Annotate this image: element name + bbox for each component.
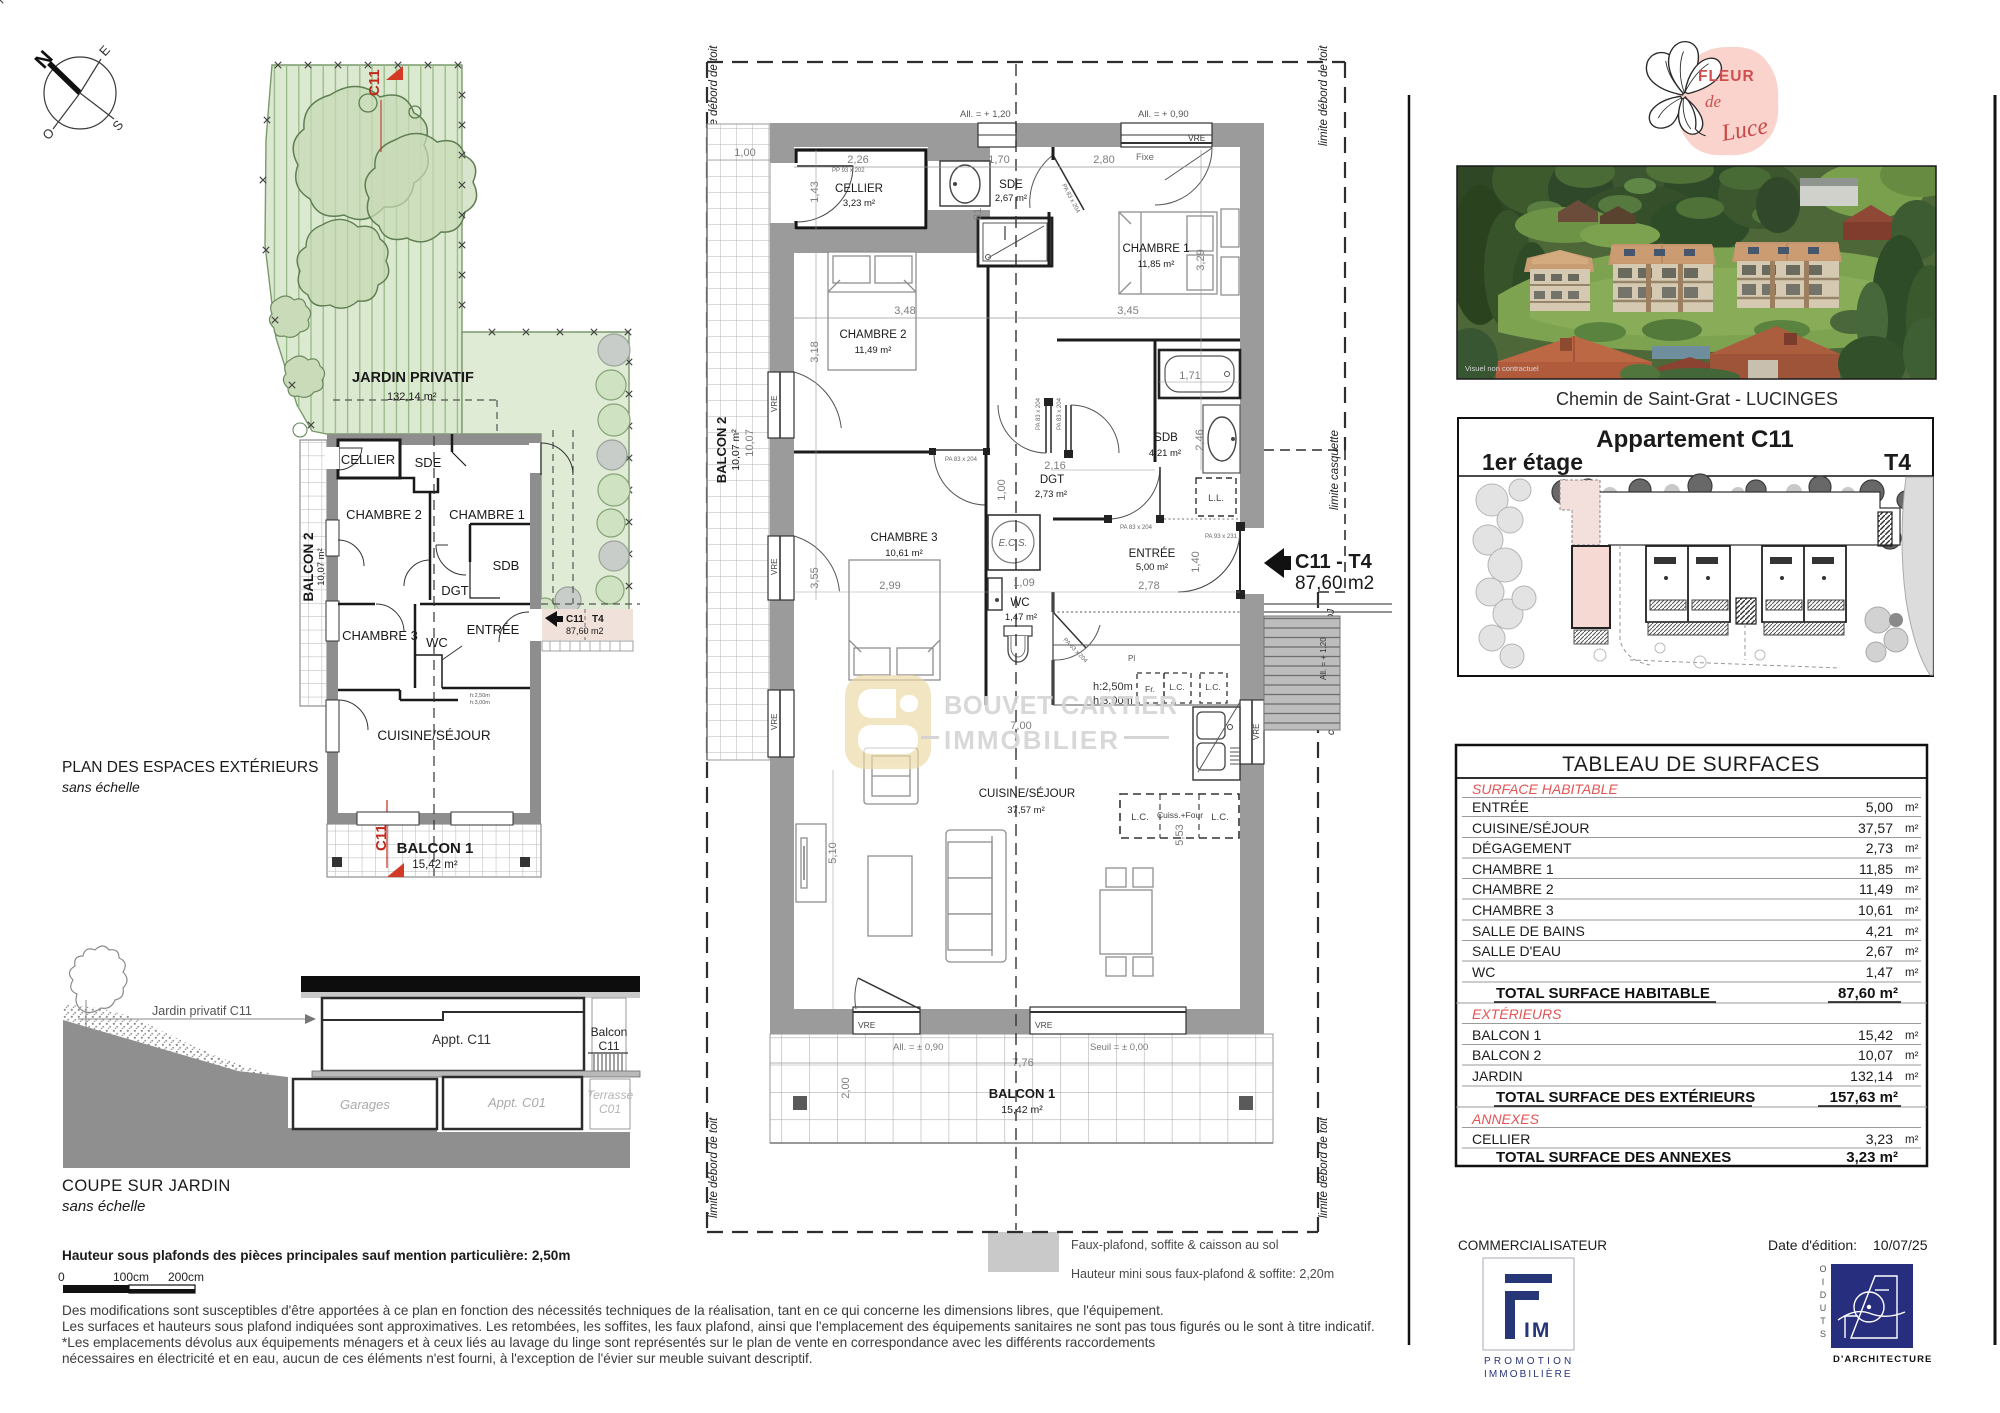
svg-text:CHAMBRE 2: CHAMBRE 2 <box>839 329 906 341</box>
svg-text:EXTÉRIEURS: EXTÉRIEURS <box>1472 1006 1562 1022</box>
svg-text:CHAMBRE 3: CHAMBRE 3 <box>342 628 418 643</box>
svg-text:Hauteur mini sous faux-plafond: Hauteur mini sous faux-plafond & soffite… <box>1071 1267 1334 1281</box>
svg-text:3,23 m²: 3,23 m² <box>843 198 875 209</box>
svg-text:CHAMBRE 3: CHAMBRE 3 <box>1472 902 1554 918</box>
svg-text:DGT: DGT <box>441 583 469 598</box>
svg-text:T4: T4 <box>1884 449 1911 475</box>
svg-text:FLEUR: FLEUR <box>1698 68 1755 85</box>
svg-text:h:2,50m: h:2,50m <box>470 693 490 699</box>
svg-text:WC: WC <box>426 635 448 650</box>
svg-text:BALCON 2: BALCON 2 <box>1472 1047 1541 1063</box>
svg-text:m²: m² <box>1905 1134 1919 1146</box>
svg-text:81: 81 <box>972 208 984 220</box>
svg-text:PA 83 x 204: PA 83 x 204 <box>1036 397 1042 430</box>
svg-text:All. = + 1,20: All. = + 1,20 <box>1319 637 1328 680</box>
svg-text:87,60 m²: 87,60 m² <box>1838 985 1898 1002</box>
svg-text:m²: m² <box>1905 926 1919 938</box>
svg-text:37,57 m²: 37,57 m² <box>1007 805 1045 816</box>
svg-text:D: D <box>1820 1290 1827 1300</box>
svg-text:Seuil = ± 0,00: Seuil = ± 0,00 <box>1090 1042 1148 1053</box>
svg-text:JARDIN PRIVATIF: JARDIN PRIVATIF <box>352 370 474 386</box>
svg-text:T4: T4 <box>592 614 604 625</box>
svg-text:1,47 m²: 1,47 m² <box>1005 612 1037 623</box>
svg-text:C11: C11 <box>566 614 584 625</box>
svg-text:TOTAL SURFACE DES EXTÉRIEURS: TOTAL SURFACE DES EXTÉRIEURS <box>1496 1089 1755 1106</box>
svg-text:BOUVET CARTIER: BOUVET CARTIER <box>944 692 1178 720</box>
svg-text:PA 93 x 231: PA 93 x 231 <box>1205 534 1238 540</box>
svg-text:1,09: 1,09 <box>1013 577 1034 589</box>
svg-text:m²: m² <box>1905 946 1919 958</box>
svg-text:11,49: 11,49 <box>1859 881 1893 897</box>
svg-text:TOTAL SURFACE DES ANNEXES: TOTAL SURFACE DES ANNEXES <box>1496 1149 1731 1166</box>
svg-text:Appartement C11: Appartement C11 <box>1596 426 1793 453</box>
svg-text:All. = + 1,20: All. = + 1,20 <box>960 109 1011 120</box>
svg-text:2,73: 2,73 <box>1866 840 1893 856</box>
svg-text:T: T <box>1820 1316 1826 1326</box>
svg-text:BALCON 2: BALCON 2 <box>301 532 316 601</box>
svg-text:WC: WC <box>1472 964 1495 980</box>
svg-text:Des modifications sont suscept: Des modifications sont susceptibles d'êt… <box>62 1303 1164 1318</box>
svg-text:Cuiss.+Four: Cuiss.+Four <box>1157 810 1203 820</box>
svg-text:10/07/25: 10/07/25 <box>1873 1237 1928 1253</box>
svg-text:3,29: 3,29 <box>1195 249 1207 270</box>
svg-text:1,00: 1,00 <box>734 147 755 159</box>
svg-text:CHAMBRE 1: CHAMBRE 1 <box>449 507 525 522</box>
svg-text:1,00: 1,00 <box>996 479 1008 500</box>
svg-text:m²: m² <box>1905 884 1919 896</box>
svg-text:PP 93 x 202: PP 93 x 202 <box>832 168 865 174</box>
svg-text:5,53: 5,53 <box>1174 824 1186 845</box>
svg-text:PA 83 x 204: PA 83 x 204 <box>945 457 978 463</box>
svg-text:2,67 m²: 2,67 m² <box>995 193 1027 204</box>
svg-text:U: U <box>1820 1303 1827 1313</box>
svg-text:5,10: 5,10 <box>827 842 839 863</box>
svg-text:3,48: 3,48 <box>894 305 915 317</box>
svg-text:11,85 m²: 11,85 m² <box>1138 259 1175 270</box>
svg-text:CELLIER: CELLIER <box>1472 1131 1530 1147</box>
svg-text:11,85: 11,85 <box>1859 861 1893 877</box>
svg-text:1,43: 1,43 <box>809 181 821 202</box>
svg-text:10,07 m²: 10,07 m² <box>316 548 327 586</box>
svg-text:2,26: 2,26 <box>847 154 868 166</box>
svg-text:S: S <box>1820 1329 1826 1339</box>
svg-text:SALLE D'EAU: SALLE D'EAU <box>1472 943 1561 959</box>
svg-text:COUPE SUR JARDIN: COUPE SUR JARDIN <box>62 1177 231 1195</box>
svg-text:10,07: 10,07 <box>744 429 756 457</box>
svg-text:O: O <box>1819 1264 1826 1274</box>
svg-text:Appt. C01: Appt. C01 <box>487 1095 546 1110</box>
svg-text:All. = ± 0,90: All. = ± 0,90 <box>893 1042 943 1053</box>
svg-text:ANNEXES: ANNEXES <box>1471 1111 1540 1127</box>
svg-text:PA 83 x 204: PA 83 x 204 <box>1120 525 1153 531</box>
svg-text:Garages: Garages <box>340 1097 390 1112</box>
svg-text:de: de <box>1705 92 1722 111</box>
svg-text:1,71: 1,71 <box>1179 370 1200 382</box>
svg-text:15,42 m²: 15,42 m² <box>1001 1104 1043 1116</box>
svg-text:132,14: 132,14 <box>1850 1068 1893 1084</box>
svg-text:2,80: 2,80 <box>1093 154 1114 166</box>
svg-text:VRE: VRE <box>770 714 779 730</box>
svg-text:E.C.S.: E.C.S. <box>999 538 1028 549</box>
svg-text:BALCON 1: BALCON 1 <box>1472 1027 1541 1043</box>
svg-text:DGT: DGT <box>1040 474 1064 486</box>
svg-text:nécessaires en électricité et: nécessaires en électricité et en eau, au… <box>62 1351 813 1366</box>
svg-text:37,57: 37,57 <box>1858 820 1893 836</box>
svg-text:SDB: SDB <box>493 558 520 573</box>
svg-text:CHAMBRE 3: CHAMBRE 3 <box>870 532 937 544</box>
svg-text:BALCON 1: BALCON 1 <box>397 840 474 857</box>
svg-text:L.C.: L.C. <box>1169 682 1185 692</box>
svg-text:PA 83 x 204: PA 83 x 204 <box>1057 397 1063 430</box>
svg-text:SDE: SDE <box>999 179 1023 191</box>
svg-text:m²: m² <box>1905 864 1919 876</box>
svg-text:10,61: 10,61 <box>1858 902 1893 918</box>
svg-text:11,49 m²: 11,49 m² <box>855 345 892 356</box>
svg-text:4,21 m²: 4,21 m² <box>1149 448 1181 459</box>
svg-text:TABLEAU DE SURFACES: TABLEAU DE SURFACES <box>1562 753 1820 776</box>
svg-text:10,07: 10,07 <box>1858 1047 1893 1063</box>
svg-text:*Les emplacements dévolus aux: *Les emplacements dévolus aux équipement… <box>62 1335 1155 1350</box>
svg-text:Appt. C11: Appt. C11 <box>432 1032 491 1047</box>
svg-text:m²: m² <box>1905 802 1919 814</box>
svg-text:I: I <box>1822 1277 1825 1287</box>
svg-text:S: S <box>109 117 126 134</box>
svg-text:2,99: 2,99 <box>879 580 900 592</box>
svg-text:PLAN DES ESPACES EXTÉRIEURS: PLAN DES ESPACES EXTÉRIEURS <box>62 759 318 776</box>
svg-text:15,42: 15,42 <box>1858 1027 1893 1043</box>
svg-text:L.C.: L.C. <box>1205 682 1221 692</box>
svg-text:sans échelle: sans échelle <box>62 779 140 795</box>
svg-text:COMMERCIALISATEUR: COMMERCIALISATEUR <box>1458 1238 1607 1253</box>
svg-text:JARDIN: JARDIN <box>1472 1068 1523 1084</box>
svg-text:3,18: 3,18 <box>809 341 821 362</box>
svg-text:Jardin privatif C11: Jardin privatif C11 <box>152 1004 252 1018</box>
svg-text:SDE: SDE <box>415 455 442 470</box>
svg-text:87,60 m2: 87,60 m2 <box>1295 573 1374 594</box>
svg-text:100cm: 100cm <box>113 1270 149 1284</box>
svg-text:CHAMBRE 2: CHAMBRE 2 <box>346 507 422 522</box>
svg-text:BALCON 2: BALCON 2 <box>714 417 729 483</box>
svg-text:m²: m² <box>1905 1050 1919 1062</box>
svg-text:L.L.: L.L. <box>1208 493 1224 504</box>
svg-text:Chemin de Saint-Grat - LUCINGE: Chemin de Saint-Grat - LUCINGES <box>1556 389 1838 409</box>
svg-text:DÉGAGEMENT: DÉGAGEMENT <box>1472 840 1572 856</box>
svg-text:10,07 m²: 10,07 m² <box>730 429 742 471</box>
svg-text:2,00: 2,00 <box>840 1077 852 1098</box>
svg-text:Les surfaces et hauteurs sous: Les surfaces et hauteurs sous plafond in… <box>62 1319 1375 1334</box>
svg-text:E: E <box>96 42 113 59</box>
svg-text:VRE: VRE <box>858 1020 876 1030</box>
svg-text:CELLIER: CELLIER <box>835 183 883 195</box>
svg-text:IM: IM <box>1524 1319 1551 1342</box>
svg-text:5,00: 5,00 <box>1866 799 1893 815</box>
svg-text:L.C.: L.C. <box>1211 812 1228 823</box>
svg-text:VRE: VRE <box>1188 133 1206 143</box>
svg-text:Date d'édition:: Date d'édition: <box>1768 1237 1857 1253</box>
svg-text:limite débord de toit: limite débord de toit <box>1318 1117 1330 1218</box>
svg-text:1,70: 1,70 <box>988 154 1009 166</box>
svg-text:15,42 m²: 15,42 m² <box>412 859 458 871</box>
svg-text:CUISINE/SÉJOUR: CUISINE/SÉJOUR <box>1472 820 1589 836</box>
svg-text:1,40: 1,40 <box>1190 551 1202 572</box>
svg-text:1,47: 1,47 <box>1866 964 1893 980</box>
svg-text:Fixe: Fixe <box>1136 152 1154 163</box>
svg-text:CHAMBRE 1: CHAMBRE 1 <box>1122 243 1189 255</box>
svg-text:C11 - T4: C11 - T4 <box>1295 551 1373 573</box>
svg-text:limite débord de toit: limite débord de toit <box>708 1117 720 1218</box>
svg-text:m²: m² <box>1905 967 1919 979</box>
svg-text:200cm: 200cm <box>168 1270 204 1284</box>
svg-text:L.C.: L.C. <box>1131 812 1148 823</box>
svg-text:VRE: VRE <box>770 396 779 412</box>
svg-text:PA 63 x 204: PA 63 x 204 <box>1062 637 1089 665</box>
svg-text:IMMOBILIÈRE: IMMOBILIÈRE <box>1484 1367 1573 1380</box>
svg-text:2,46: 2,46 <box>1194 429 1206 450</box>
svg-text:limite casquette: limite casquette <box>1329 430 1341 510</box>
svg-text:Faux-plafond, soffite & caisso: Faux-plafond, soffite & caisson au sol <box>1071 1238 1279 1252</box>
svg-text:C11: C11 <box>598 1039 619 1053</box>
svg-text:132,14 m²: 132,14 m² <box>387 391 437 403</box>
svg-text:m²: m² <box>1905 1071 1919 1083</box>
svg-text:m²: m² <box>1905 823 1919 835</box>
svg-text:SURFACE HABITABLE: SURFACE HABITABLE <box>1472 781 1618 797</box>
svg-text:3,45: 3,45 <box>1117 305 1138 317</box>
svg-text:2,73 m²: 2,73 m² <box>1035 489 1067 500</box>
svg-text:SDB: SDB <box>1154 432 1178 444</box>
svg-text:VRE: VRE <box>1252 724 1261 740</box>
svg-text:IMMOBILIER: IMMOBILIER <box>944 725 1120 755</box>
svg-text:2,16: 2,16 <box>1044 460 1065 472</box>
svg-text:m²: m² <box>1905 843 1919 855</box>
svg-text:m²: m² <box>1905 1030 1919 1042</box>
svg-text:Visuel non contractuel: Visuel non contractuel <box>1465 364 1539 373</box>
svg-text:VRE: VRE <box>770 559 779 575</box>
svg-text:3,55: 3,55 <box>809 567 821 588</box>
svg-text:sans échelle: sans échelle <box>62 1198 145 1215</box>
svg-text:5,00 m²: 5,00 m² <box>1136 562 1168 573</box>
svg-text:CHAMBRE 2: CHAMBRE 2 <box>1472 881 1554 897</box>
svg-text:TOTAL SURFACE HABITABLE: TOTAL SURFACE HABITABLE <box>1496 985 1710 1002</box>
svg-text:C11: C11 <box>366 69 383 96</box>
svg-text:2,78: 2,78 <box>1138 580 1159 592</box>
svg-text:PROMOTION: PROMOTION <box>1484 1356 1574 1367</box>
svg-text:ENTRÉE: ENTRÉE <box>467 622 520 637</box>
svg-text:2,67: 2,67 <box>1866 943 1893 959</box>
svg-text:ENTRÉE: ENTRÉE <box>1472 799 1529 815</box>
svg-text:1er étage: 1er étage <box>1482 449 1583 475</box>
svg-text:CELLIER: CELLIER <box>341 452 395 467</box>
svg-text:Balcon: Balcon <box>591 1025 628 1039</box>
svg-text:VRE: VRE <box>1035 1020 1053 1030</box>
svg-text:SALLE DE BAINS: SALLE DE BAINS <box>1472 923 1585 939</box>
svg-text:limite débord de toit: limite débord de toit <box>1318 45 1330 146</box>
svg-text:10,61 m²: 10,61 m² <box>885 548 923 559</box>
svg-text:4,21: 4,21 <box>1866 923 1893 939</box>
svg-text:Hauteur sous plafonds des pièc: Hauteur sous plafonds des pièces princip… <box>62 1248 570 1263</box>
svg-text:WC: WC <box>1010 597 1029 609</box>
svg-text:ENTRÉE: ENTRÉE <box>1129 547 1176 560</box>
svg-text:CHAMBRE 1: CHAMBRE 1 <box>1472 861 1554 877</box>
svg-text:CUISINE/SÉJOUR: CUISINE/SÉJOUR <box>979 787 1076 800</box>
svg-text:C01: C01 <box>599 1102 621 1116</box>
svg-text:3,23 m²: 3,23 m² <box>1846 1149 1898 1166</box>
svg-text:157,63 m²: 157,63 m² <box>1830 1089 1898 1106</box>
svg-text:Terrasse: Terrasse <box>587 1088 634 1102</box>
svg-text:D'ARCHITECTURE: D'ARCHITECTURE <box>1833 1354 1932 1365</box>
svg-text:h:3,00m: h:3,00m <box>470 700 490 706</box>
svg-text:m²: m² <box>1905 905 1919 917</box>
svg-text:Pl: Pl <box>1128 654 1135 663</box>
svg-text:All. = + 0,90: All. = + 0,90 <box>1138 109 1189 120</box>
svg-text:3,23: 3,23 <box>1866 1131 1893 1147</box>
svg-text:BALCON 1: BALCON 1 <box>989 1086 1055 1101</box>
svg-text:0: 0 <box>58 1270 65 1284</box>
